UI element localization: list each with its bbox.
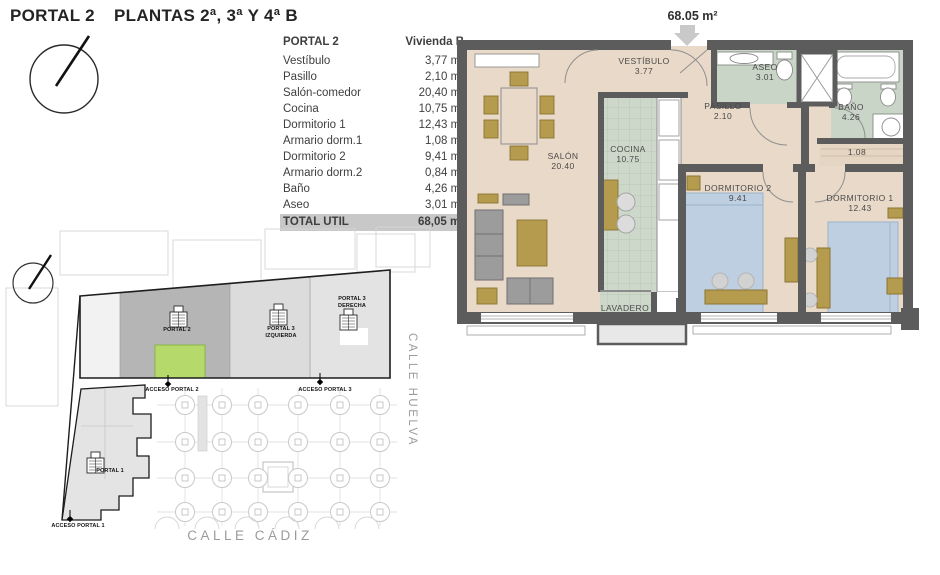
table-row: Vestíbulo3,77 m² (283, 53, 464, 69)
room-area: 1.08 (837, 148, 877, 158)
table-row: Armario dorm.20,84 m² (283, 165, 464, 181)
site-label-portal2: PORTAL 2 (147, 327, 207, 334)
column-grid (155, 388, 397, 529)
areas-table: PORTAL 2 Vivienda B Vestíbulo3,77 m² Pas… (283, 33, 464, 231)
page: { "header": { "portal": "PORTAL 2", "pla… (0, 0, 940, 575)
table-row: Baño4,26 m² (283, 181, 464, 197)
row-label: Vestíbulo (283, 53, 330, 69)
site-label-portal3-derecha: PORTAL 3 DERECHA (330, 296, 374, 309)
row-label: Dormitorio 2 (283, 149, 346, 165)
room-label-lavadero: LAVADERO (575, 304, 675, 314)
room-area: 10.75 (588, 155, 668, 165)
row-label: Cocina (283, 101, 319, 117)
site-plan-drawing (5, 226, 435, 556)
sheet-title-plantas: PLANTAS 2ª, 3ª Y 4ª B (114, 6, 298, 26)
row-label: Dormitorio 1 (283, 117, 346, 133)
room-label-dormitorio2: DORMITORIO 2 9.41 (688, 184, 788, 203)
row-label: Armario dorm.1 (283, 133, 362, 149)
room-area: 3.77 (594, 67, 694, 77)
table-row: Pasillo2,10 m² (283, 69, 464, 85)
areas-table-header: PORTAL 2 Vivienda B (283, 33, 464, 53)
room-label-vestibulo: VESTÍBULO 3.77 (594, 57, 694, 76)
site-label-portal1: PORTAL 1 (80, 468, 140, 475)
sheet-title-portal: PORTAL 2 (10, 6, 95, 26)
room-area: 2.10 (683, 112, 763, 122)
areas-table-header-room: PORTAL 2 (283, 33, 339, 53)
room-area: 9.41 (688, 194, 788, 204)
room-label-cocina: COCINA 10.75 (588, 145, 668, 164)
exterior-ledges (467, 324, 891, 344)
compass-icon (13, 255, 53, 303)
room-area: 3.01 (725, 73, 805, 83)
compass-icon (20, 25, 110, 120)
room-label-pasillo: PASILLO 2.10 (683, 102, 763, 121)
room-label-aseo: ASEO 3.01 (725, 63, 805, 82)
room-area: 12.43 (810, 204, 910, 214)
room-label-armario: 1.08 (837, 148, 877, 158)
room-name: LAVADERO (575, 304, 675, 314)
site-label-acceso-portal3: ACCESO PORTAL 3 (285, 387, 365, 394)
row-label: Salón-comedor (283, 85, 361, 101)
table-row: Salón-comedor20,40 m² (283, 85, 464, 101)
street-label-calle-huelva: CALLE HUELVA (406, 333, 418, 447)
table-row: Armario dorm.11,08 m² (283, 133, 464, 149)
row-label: Pasillo (283, 69, 317, 85)
site-label-acceso-portal2: ACCESO PORTAL 2 (132, 387, 212, 394)
street-label-calle-cadiz: CALLE CÁDIZ (150, 528, 350, 543)
site-label-portal3-izquierda: PORTAL 3 IZQUIERDA (259, 326, 303, 339)
room-label-dormitorio1: DORMITORIO 1 12.43 (810, 194, 910, 213)
room-label-bano: BAÑO 4.26 (811, 103, 891, 122)
portal1-building (62, 385, 151, 520)
table-row: Cocina10,75 m² (283, 101, 464, 117)
table-row: Aseo3,01 m² (283, 197, 464, 213)
site-label-acceso-portal1: ACCESO PORTAL 1 (38, 523, 118, 530)
highlighted-unit (155, 345, 205, 378)
row-label: Baño (283, 181, 310, 197)
row-label: Aseo (283, 197, 309, 213)
room-area: 4.26 (811, 113, 891, 123)
row-label: Armario dorm.2 (283, 165, 362, 181)
table-row: Dormitorio 112,43 m² (283, 117, 464, 133)
table-row: Dormitorio 29,41 m² (283, 149, 464, 165)
